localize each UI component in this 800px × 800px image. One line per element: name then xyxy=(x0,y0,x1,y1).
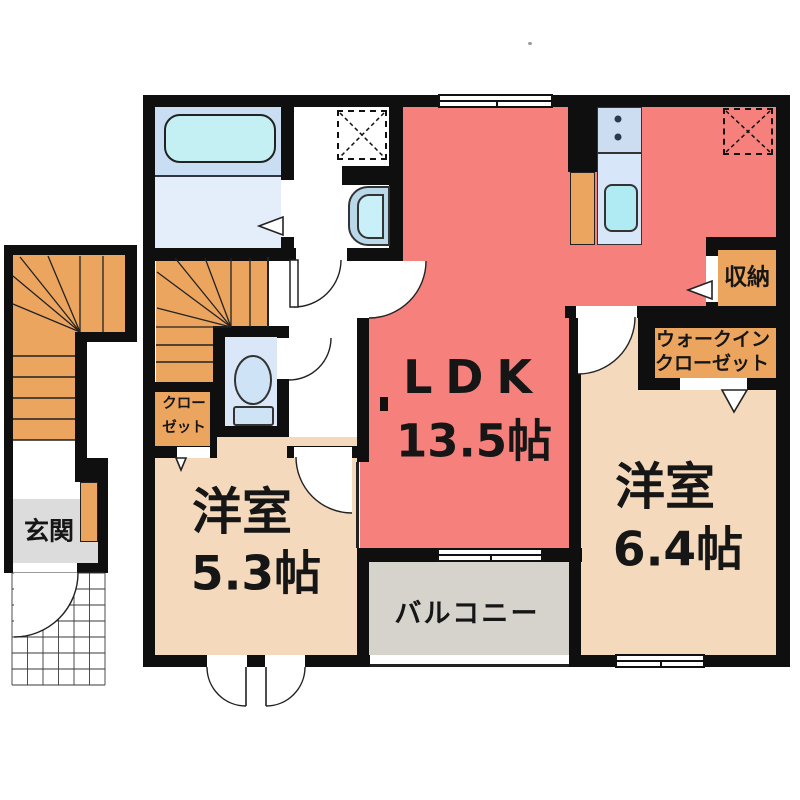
bath-door-gap xyxy=(281,180,294,237)
double-door-gap-left xyxy=(207,655,247,667)
wall-left xyxy=(143,95,155,667)
stairs-winder-annex xyxy=(13,255,125,333)
wall-washroom-ldk xyxy=(389,95,403,261)
annex-wall-left xyxy=(4,245,13,573)
wall-balcony-left xyxy=(357,548,369,667)
storage-label: 収納 xyxy=(724,267,770,290)
western-room-6-4-area-label: 6.4帖 xyxy=(613,527,743,574)
kitchen-cabinet xyxy=(570,172,595,245)
double-door-left-swing xyxy=(207,667,246,706)
wall-washer-segment xyxy=(342,166,389,185)
walk-in-closet-label-line1: ウォークイン xyxy=(656,331,770,350)
opening-ldk-room53 xyxy=(360,462,369,548)
annex-wall-right-upper xyxy=(125,245,137,342)
wall-bottom-west xyxy=(143,655,370,667)
hallway xyxy=(287,260,357,446)
toilet-door-gap xyxy=(277,338,289,379)
balcony-window xyxy=(437,548,543,562)
window-tick xyxy=(490,555,492,560)
stairs-flight-annex xyxy=(13,333,75,440)
closet-door-gap xyxy=(177,447,210,458)
entrance-door-gap xyxy=(13,563,77,573)
balcony-label: バルコニー xyxy=(394,601,539,628)
balcony-railing xyxy=(369,655,569,664)
room64-door-gap xyxy=(576,306,637,318)
room53-door-gap xyxy=(294,447,352,458)
double-door-right-swing xyxy=(266,667,305,706)
wall-stub-ldk xyxy=(380,397,388,411)
wic-door-gap xyxy=(680,378,747,390)
washing-machine-space-icon xyxy=(337,110,387,160)
window-tick xyxy=(660,661,662,666)
western-room-5-3-label: 洋室 xyxy=(192,487,292,537)
stairs-winder-main xyxy=(156,257,268,327)
bathtub-icon xyxy=(164,114,276,163)
washroom-door-gap xyxy=(296,248,347,261)
kitchen-counter-stove xyxy=(597,107,642,153)
shoe-cabinet xyxy=(80,482,98,542)
wall-room64-left xyxy=(569,306,581,667)
ldk-top-window xyxy=(438,94,553,108)
washbasin-bowl xyxy=(357,194,384,239)
balcony-railing-edge xyxy=(369,664,569,667)
double-door-gap-right xyxy=(265,655,305,667)
wall-storage-top xyxy=(706,237,790,250)
kitchen-sink-icon xyxy=(604,184,638,232)
window-tick xyxy=(496,101,498,106)
ldk-area-label: 13.5帖 xyxy=(396,419,552,464)
toilet-tank xyxy=(233,406,274,426)
storage-door-gap xyxy=(706,256,718,302)
ldk-label: LDK xyxy=(403,354,545,400)
double-door-right-arc xyxy=(266,667,305,706)
annex-wall-top xyxy=(4,245,137,255)
walk-in-closet-label-line2: クローゼット xyxy=(655,355,769,374)
refrigerator-space-icon xyxy=(723,108,773,155)
western-room-5-3-area-label: 5.3帖 xyxy=(191,551,321,598)
double-door-left-arc xyxy=(207,667,246,706)
ldk-door-gap xyxy=(357,261,369,318)
bathroom-floor xyxy=(155,175,282,248)
stairs-flight-main xyxy=(156,327,213,382)
closet-label-line1: クロー xyxy=(162,397,206,412)
porch-tile xyxy=(12,573,105,685)
room64-window xyxy=(615,654,705,668)
annex-wall-right-lower xyxy=(98,458,108,573)
speck-artifact xyxy=(528,42,532,45)
western-room-6-4-label: 洋室 xyxy=(615,462,715,512)
floor-plan: LDK 13.5帖 洋室 5.3帖 洋室 6.4帖 バルコニー 玄関 収納 ウォ… xyxy=(0,0,800,800)
closet-label-line2: ゼット xyxy=(162,421,206,436)
wall-wic-top xyxy=(638,306,790,328)
entrance-label: 玄関 xyxy=(24,519,74,544)
ldk-room xyxy=(368,250,706,310)
wall-kitchen-divider xyxy=(568,107,597,172)
opening-edge-line xyxy=(356,462,359,548)
